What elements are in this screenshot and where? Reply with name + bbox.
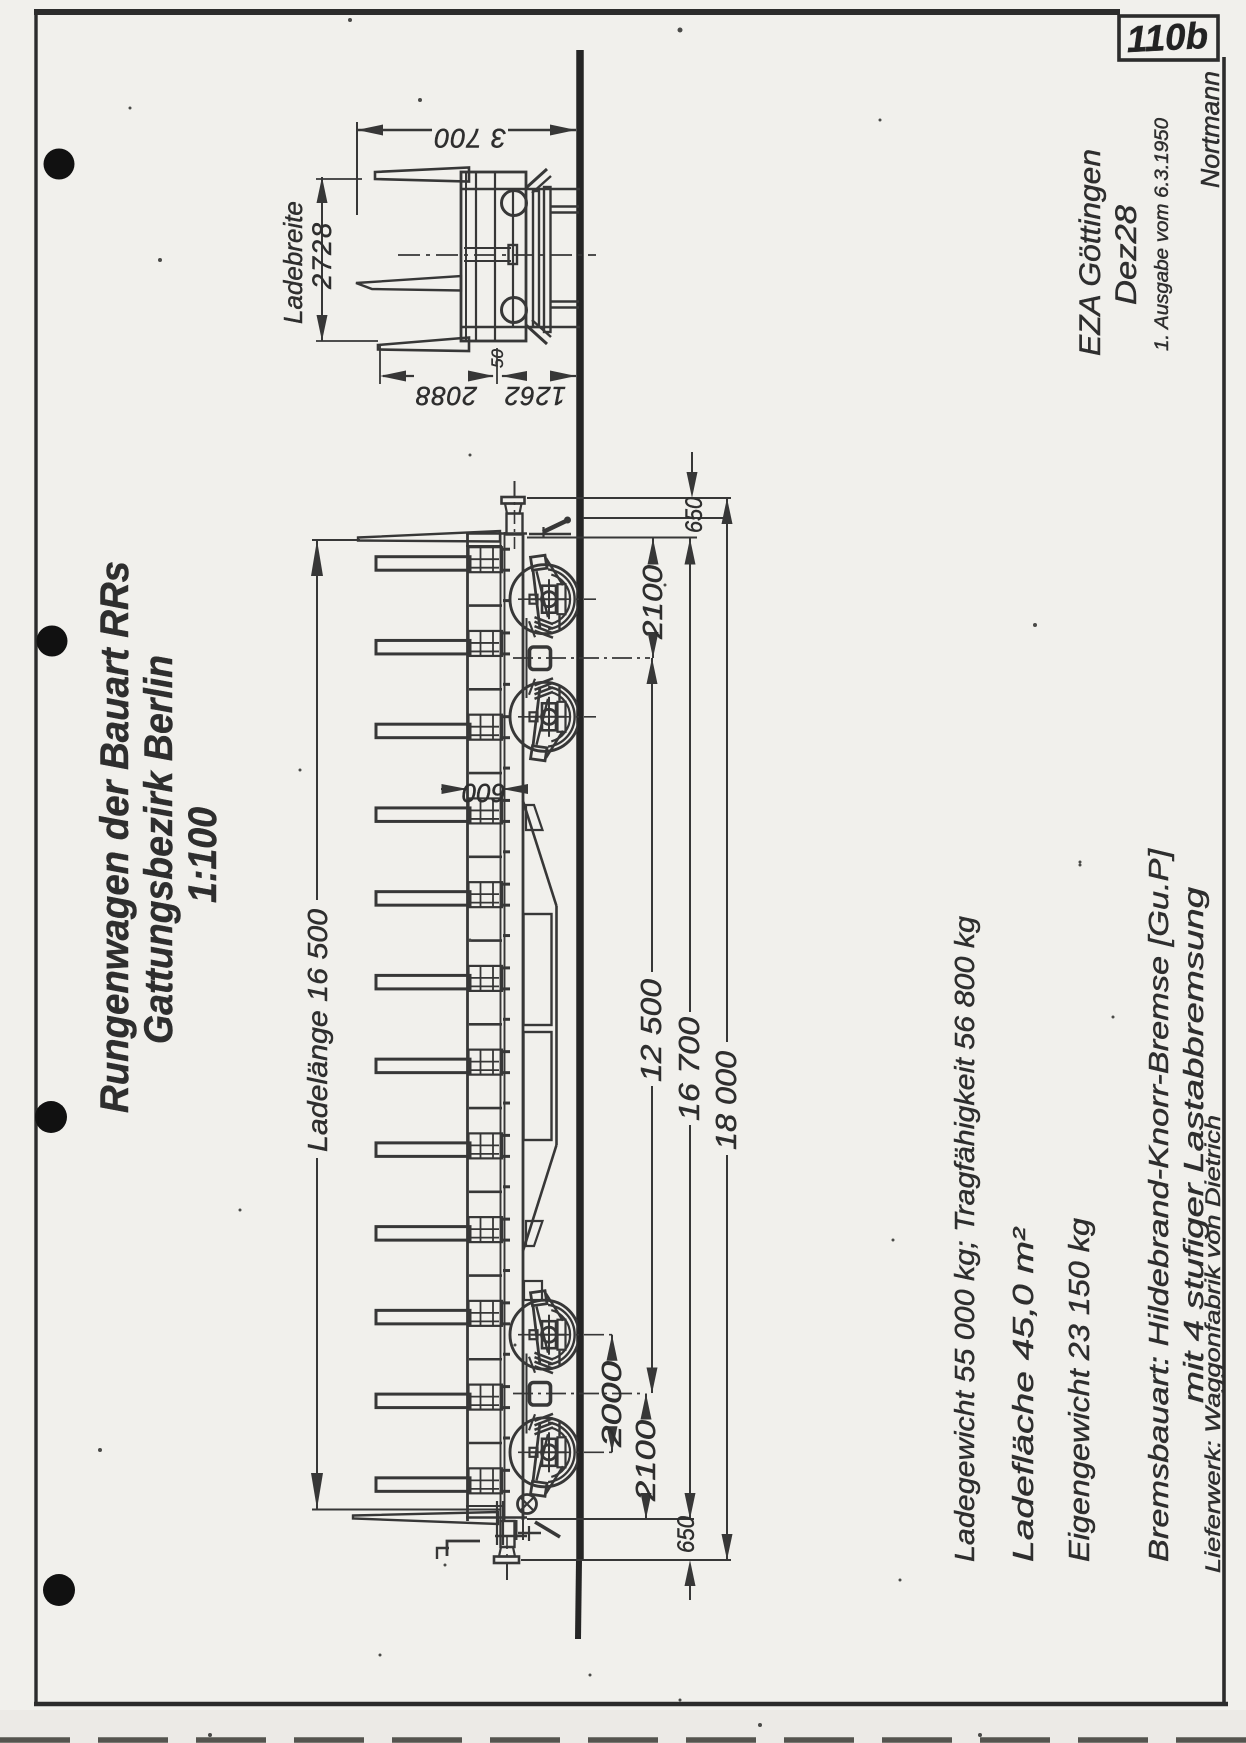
svg-text:Eigengewicht 23 150 kg: Eigengewicht 23 150 kg — [1064, 1218, 1096, 1562]
svg-text:1. Ausgabe vom 6.3.1950: 1. Ausgabe vom 6.3.1950 — [1152, 118, 1173, 351]
svg-text:16 700: 16 700 — [674, 1017, 706, 1121]
svg-text:2728: 2728 — [307, 221, 337, 290]
svg-text:Ladebreite: Ladebreite — [278, 201, 308, 324]
svg-text:Nortmann: Nortmann — [1195, 71, 1225, 188]
svg-text:2100: 2100 — [630, 1419, 661, 1502]
svg-text:650: 650 — [673, 1515, 700, 1553]
svg-text:2100: 2100 — [637, 565, 668, 641]
svg-text:Ladegewicht 55 000 kg; Tragfäh: Ladegewicht 55 000 kg; Tragfähigkeit 56 … — [949, 916, 980, 1562]
svg-text:Ladefläche 45,0 m²: Ladefläche 45,0 m² — [1008, 1226, 1040, 1562]
svg-text:Dez28: Dez28 — [1110, 205, 1143, 305]
svg-text:650: 650 — [681, 496, 708, 533]
svg-text:Rungenwagen der Bauart RRs: Rungenwagen der Bauart RRs — [93, 561, 137, 1113]
svg-text:2000: 2000 — [596, 1360, 627, 1448]
svg-text:Ladelänge 16 500: Ladelänge 16 500 — [302, 909, 333, 1152]
svg-text:600: 600 — [462, 778, 506, 808]
svg-text:110b: 110b — [1126, 15, 1210, 60]
svg-text:12 500: 12 500 — [636, 979, 668, 1082]
svg-text:Lieferwerk: Waggonfabrik von: Lieferwerk: Waggonfabrik von Dietrich — [1202, 1115, 1225, 1573]
svg-text:1:100: 1:100 — [181, 807, 225, 903]
svg-text:Gattungsbezirk Berlin: Gattungsbezirk Berlin — [137, 655, 181, 1044]
svg-text:1262: 1262 — [504, 381, 566, 411]
svg-text:3 700: 3 700 — [434, 123, 507, 153]
svg-text:Bremsbauart: Hildebrand-Knorr: Bremsbauart: Hildebrand-Knorr-Bremse [Gu… — [1143, 848, 1174, 1562]
svg-text:EZA Göttingen: EZA Göttingen — [1074, 149, 1107, 356]
svg-text:18 000: 18 000 — [711, 1051, 743, 1150]
svg-text:2088: 2088 — [415, 381, 478, 411]
